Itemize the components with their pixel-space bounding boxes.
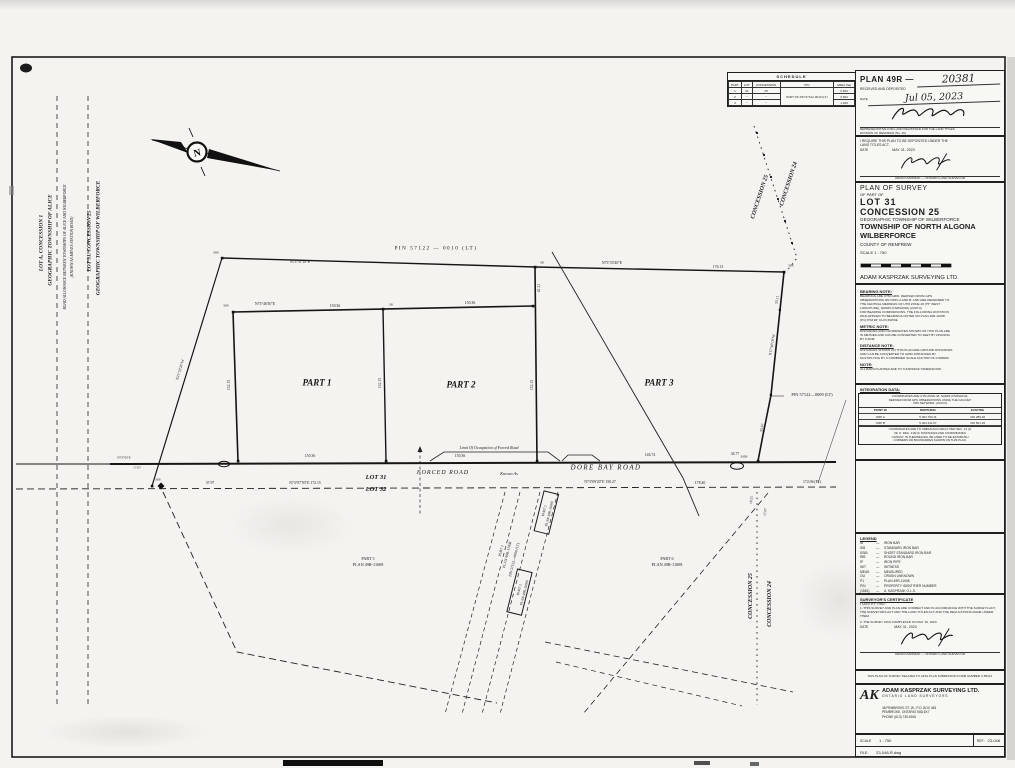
- lot-a-concession-1-label: LOT A, CONCESSION 1: [39, 215, 44, 271]
- concession-25-se-label: CONCESSION 25: [748, 573, 754, 619]
- plan-number-box: PLAN 49R — 20381 RECEIVED AND DEPOSITED …: [855, 70, 1005, 136]
- deposit-requirement-box: I REQUIRE THIS PLAN TO BE DEPOSITED UNDE…: [855, 136, 1005, 182]
- certificate-signer-name: ADAM KASPRZAK: [895, 652, 921, 656]
- part3-label: PART 3: [644, 379, 673, 388]
- certificate-signer-title: ONTARIO LAND SURVEYOR: [925, 652, 965, 656]
- dim-road-bearing-2: N73°09'20"E 150.27: [584, 481, 616, 485]
- certificate-item-2: 2. THE SURVEY WAS COMPLETED ON MAY 16, 2…: [860, 620, 1000, 624]
- known-as-label: Known As: [500, 472, 518, 476]
- integration-cell: 5 064 411.07: [902, 420, 955, 426]
- county-line: COUNTY OF RENFREW: [860, 242, 1000, 247]
- integration-footer-line: CORNERS OR BOUNDARIES SHOWN ON THIS PLAN…: [861, 439, 999, 443]
- concession-24-ne-label: CONCESSION 24: [779, 161, 799, 206]
- certificate-item-1: 1. THIS SURVEY AND PLAN ARE CORRECT AND …: [860, 607, 1000, 619]
- schedule-cell: 3: [729, 100, 742, 106]
- require-signer-title: ONTARIO LAND SURVEYOR: [925, 176, 965, 180]
- integration-heading: INTEGRATION DATA:: [860, 387, 1000, 392]
- dore-bay-road-label: DORE BAY ROAD: [571, 466, 642, 473]
- part5-plan-label: PLAN 49R-11008: [353, 563, 384, 567]
- plan-number-label: PLAN 49R —: [860, 75, 914, 84]
- require-line-2: LAND TITLES ACT.: [860, 143, 1000, 147]
- company-logo: AK: [860, 688, 882, 704]
- certificate-date-label: DATE: [860, 625, 868, 629]
- integration-data-box: INTEGRATION DATA: COORDINATES ARE UTM ZO…: [855, 384, 1005, 460]
- scale-bar: [860, 256, 1000, 274]
- dim-severance-dist-2: 150.36: [465, 302, 475, 306]
- scale-text: SCALE 1 : 750: [860, 250, 1000, 255]
- lot31-label: LOT 31: [366, 475, 387, 482]
- registrar-signature: [860, 104, 1000, 127]
- lot32-label: LOT 32: [366, 487, 387, 494]
- dim-part3-south-2: 34.77: [731, 453, 740, 457]
- mon-sib-2: SIB: [213, 251, 218, 254]
- plan-number-value: 20381: [917, 72, 1000, 88]
- footer-scale-value: 1 : 750: [879, 738, 973, 743]
- concession-25-ne-label: CONCESSION 25: [750, 174, 770, 219]
- schedule-table: SCHEDULE PARTLOTCONCESSIONPINAREA (ha)13…: [727, 72, 856, 107]
- township-of-alice-label: GEOGRAPHIC TOWNSHIP OF ALICE: [48, 194, 53, 285]
- dim-top-bearing: N73°51'10"E: [290, 261, 310, 265]
- footer-box: SCALE 1 : 750 REF: 23-048 FILE: 23-048-R…: [855, 734, 1005, 757]
- notes-box: BEARING NOTE:BEARINGS ARE UTM GRID, DERI…: [855, 284, 1005, 384]
- schedule-title: SCHEDULE: [728, 73, 855, 81]
- company-box: AK ADAM KASPRZAK SURVEYING LTD. ONTARIO …: [855, 684, 1005, 734]
- schedule-pin-cell: PART OF PIN 57122-0010 (LT): [780, 88, 834, 106]
- township-of-wilberforce-label: GEOGRAPHIC TOWNSHIP OF WILBERFORCE: [96, 181, 101, 295]
- township-line-2: WILBERFORCE: [860, 231, 1000, 240]
- schedule-cell: ": [741, 100, 752, 106]
- dim-part12-line: 152.15: [379, 378, 383, 388]
- surveyor-signature-bottom: [860, 627, 1000, 652]
- dim-part3-south: 146.74: [645, 454, 655, 458]
- footer-file-value: 23-048-R.dwg: [876, 750, 901, 755]
- note-line: MULTIPLYING BY A COMBINED SCALE FACTOR O…: [860, 356, 1000, 360]
- dim-part23-line: 152.15: [531, 380, 535, 390]
- firm-name: ADAM KASPRZAK SURVEYING LTD.: [860, 275, 1000, 281]
- part2-label: PART 2: [446, 381, 475, 390]
- dim-part2-south: 150.36: [455, 455, 465, 459]
- dim-road-2: 178.40: [695, 482, 705, 486]
- plan-of-survey-title: PLAN OF SURVEY: [860, 185, 1000, 192]
- dim-part3-top-dist: 176.13: [713, 266, 723, 270]
- panel-spacer-box: [855, 460, 1005, 533]
- integration-cell: 332 501.29: [954, 420, 1001, 426]
- schedule-area-cell: 1.645: [834, 100, 855, 106]
- part1-label: PART 1: [302, 379, 331, 388]
- limit-of-occupation-label: Limit Of Occupation of Forced Road: [459, 446, 518, 450]
- dim-left-road-dist: 17.07: [133, 466, 141, 470]
- dim-part3-east-1: 55.11: [775, 296, 780, 305]
- schedule-cell: ": [752, 100, 780, 106]
- road-allowance-label-2: (KNOWN AS MEVES STATION ROAD): [71, 217, 75, 278]
- integration-cell: ORP B: [859, 420, 902, 426]
- dim-road-bearing-1: N73°07'50"E 172.15: [289, 482, 321, 486]
- title-block: PLAN OF SURVEY OF PART OF LOT 31 CONCESS…: [855, 182, 1005, 284]
- dim-part3-east-2: 35.67: [760, 423, 765, 432]
- mon-ssib-1: SSIB: [741, 455, 748, 458]
- dim-junction-1: 19.25: [750, 496, 754, 504]
- pin-0009-label: PIN 57122—0009 (LT): [791, 393, 832, 397]
- dim-part3-top-bearing: N73°55'40"E: [602, 262, 622, 266]
- mon-ib-2: IB: [540, 261, 543, 264]
- lot-title: LOT 31: [860, 197, 1000, 207]
- dim-junction-2: 17.07: [764, 508, 768, 516]
- footer-ref-value: 23-048: [988, 738, 1004, 743]
- mon-sib-3: SIB: [155, 478, 160, 481]
- concession-24-se-label: CONCESSION 24: [767, 581, 773, 627]
- footer-scale-label: SCALE: [856, 739, 871, 743]
- relates-note-text: THIS PLAN OF SURVEY RELATES TO AKSL PLAN…: [856, 671, 1004, 678]
- deposit-date-label: DATE: [860, 97, 868, 101]
- part6-plan-label: PLAN 49R-11008: [652, 563, 683, 567]
- mon-ib-1: IB: [389, 303, 392, 306]
- part5-label: PART 5: [361, 557, 374, 561]
- forced-road-label: FORCED ROAD: [417, 470, 469, 476]
- certificate-box: SURVEYOR'S CERTIFICATE I CERTIFY THAT: 1…: [855, 594, 1005, 670]
- dim-part1-south: 150.36: [305, 455, 315, 459]
- pin-top-label: PIN 57122 — 0010 (LT): [395, 246, 478, 251]
- lot-31-concession-25-label: LOT 31, CONCESSION 25: [87, 210, 92, 271]
- require-signer-name: ADAM KASPRZAK: [895, 176, 921, 180]
- road-allowance-label-1: ROAD ALLOWANCE BETWEEN TOWNSHIPS OF ALIC…: [64, 184, 68, 309]
- company-phone: PHONE (613) 735-6916: [882, 715, 1000, 719]
- integration-table: COORDINATES ARE UTM ZONE 18, NAD83 (CSRS…: [858, 393, 1002, 445]
- dim-part3-east-bearing: N17°40'10"W: [769, 334, 776, 356]
- dim-part1-west: 152.15: [228, 380, 232, 390]
- footer-file-label: FILE:: [856, 751, 868, 755]
- company-subtitle: ONTARIO LAND SURVEYORS: [882, 694, 979, 698]
- mon-sib-1: SIB: [223, 304, 228, 307]
- registrar-caption-2: DIVISION OF RENFREW (No. 49): [860, 131, 1000, 135]
- dim-left-road-bearing: N73°05'E: [117, 456, 131, 460]
- surveyor-signature-top: [860, 152, 1000, 176]
- concession-title: CONCESSION 25: [860, 207, 1000, 217]
- part6-label: PART 6: [660, 557, 673, 561]
- dim-road-1: 37.97: [206, 482, 215, 486]
- dim-part23-upper: 41.21: [538, 284, 542, 293]
- relates-note-strip: THIS PLAN OF SURVEY RELATES TO AKSL PLAN…: [855, 670, 1005, 684]
- note-line: ALL BARS PLANTED ARE TO 'KASPRZAK' DIMEN…: [860, 367, 1000, 371]
- mon-sib-4: SIB: [788, 264, 793, 267]
- note-line: (P1) 0°02'20" CLOCKWISE: [860, 318, 1000, 322]
- integration-intro-line: VRS NETWORK. (2010.0): [861, 402, 999, 406]
- township-line-1: TOWNSHIP OF NORTH ALGONA: [860, 222, 1000, 231]
- dim-road-3: 172.06 (P1): [803, 481, 821, 485]
- footer-ref-label: REF:: [973, 735, 988, 746]
- dim-severance-dist-1: 150.36: [330, 305, 340, 309]
- scanned-survey-plan-page: { "plan_box": { "label": "PLAN 49R —", "…: [0, 0, 1015, 768]
- legend-box: LEGEND IB—IRON BARSIB—STANDARD IRON BARS…: [855, 533, 1005, 594]
- require-date-label: DATE: [860, 148, 868, 152]
- dim-severance-bearing: N73°46'30"E: [255, 303, 275, 307]
- dim-west-boundary: N21°33'20"W: [176, 359, 186, 381]
- note-line: BY 0.3048.: [860, 337, 1000, 341]
